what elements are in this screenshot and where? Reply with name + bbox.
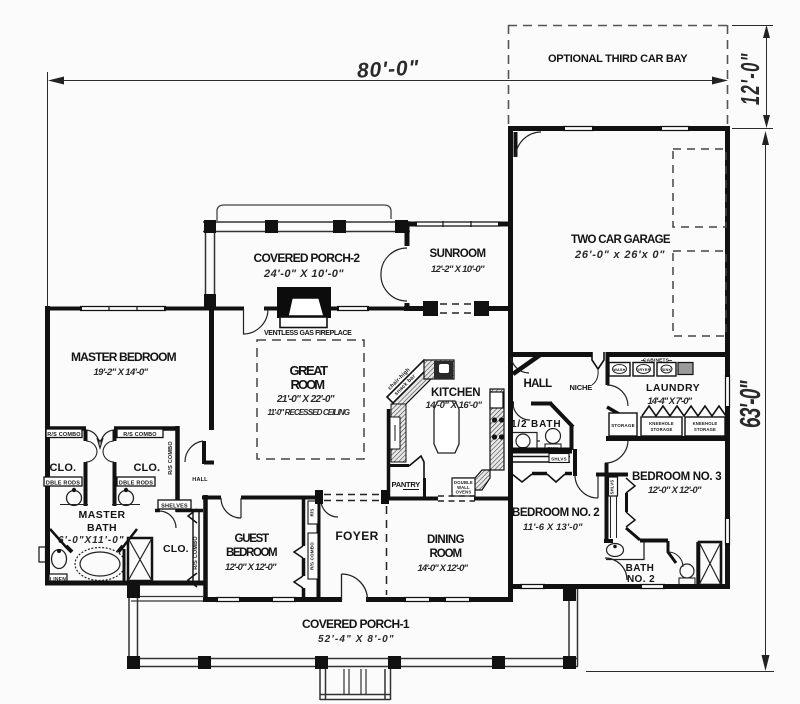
svg-text:CLO.: CLO.: [50, 462, 77, 474]
svg-text:SUNROOM: SUNROOM: [430, 248, 487, 260]
svg-text:KNEEHOLE: KNEEHOLE: [693, 421, 718, 426]
svg-text:19'-2" X 14'-0": 19'-2" X 14'-0": [94, 367, 149, 378]
svg-text:14'-4" X 7'-0": 14'-4" X 7'-0": [648, 396, 693, 407]
svg-text:STORAGE: STORAGE: [611, 423, 635, 428]
svg-text:11'-6 X 13'-0": 11'-6 X 13'-0": [523, 522, 583, 533]
svg-text:NICHE: NICHE: [570, 383, 593, 392]
svg-text:TWO CAR GARAGE: TWO CAR GARAGE: [571, 234, 671, 246]
svg-text:BEDROOM: BEDROOM: [226, 547, 278, 559]
svg-text:PANTRY: PANTRY: [392, 480, 421, 489]
svg-text:BATH: BATH: [626, 563, 655, 574]
svg-text:12'-0" X 12'-0": 12'-0" X 12'-0": [648, 485, 702, 496]
svg-text:LAUNDRY: LAUNDRY: [646, 382, 700, 394]
svg-text:KITCHEN: KITCHEN: [431, 387, 481, 399]
svg-text:24'-0" X 10'-0": 24'-0" X 10'-0": [263, 268, 344, 280]
svg-text:12'-0" X 12'-0": 12'-0" X 12'-0": [225, 562, 277, 573]
svg-text:21'-0" X 22'-0": 21'-0" X 22'-0": [276, 394, 335, 405]
svg-text:COVERED PORCH-1: COVERED PORCH-1: [302, 617, 410, 631]
svg-text:SHELVES: SHELVES: [161, 504, 188, 510]
svg-text:BATH: BATH: [87, 522, 117, 534]
svg-text:R/S COMBO: R/S COMBO: [123, 432, 157, 438]
svg-text:CLO.: CLO.: [134, 462, 161, 474]
svg-text:OPTIONAL THIRD CAR BAY: OPTIONAL THIRD CAR BAY: [548, 53, 688, 65]
svg-text:R/S COMBO: R/S COMBO: [168, 441, 174, 475]
svg-text:STORAGE: STORAGE: [694, 427, 716, 432]
svg-text:SHLVS: SHLVS: [551, 457, 567, 462]
svg-text:OVENS: OVENS: [456, 490, 472, 495]
svg-text:KNEEHOLE: KNEEHOLE: [649, 421, 674, 426]
svg-text:GUEST: GUEST: [235, 533, 270, 545]
svg-text:63'-0": 63'-0": [735, 380, 767, 428]
svg-text:26'-0" x 26'x 0": 26'-0" x 26'x 0": [574, 249, 665, 261]
svg-text:80'-0": 80'-0": [356, 56, 420, 82]
svg-text:BEDROOM NO. 2: BEDROOM NO. 2: [512, 507, 600, 519]
svg-text:MASTER: MASTER: [79, 509, 126, 521]
svg-text:14'-0" X 16'-0": 14'-0" X 16'-0": [426, 400, 483, 411]
svg-text:MASTER BEDROOM: MASTER BEDROOM: [71, 350, 177, 364]
svg-text:FOYER: FOYER: [335, 529, 378, 543]
svg-text:DBLE RODS: DBLE RODS: [119, 481, 153, 487]
svg-text:R/S COMBO: R/S COMBO: [193, 536, 199, 570]
svg-text:HALL: HALL: [192, 477, 208, 483]
svg-text:CLO.: CLO.: [163, 543, 189, 555]
svg-text:VENTLESS GAS FIREPLACE: VENTLESS GAS FIREPLACE: [264, 330, 352, 337]
svg-text:DRYER: DRYER: [636, 368, 650, 372]
svg-text:DBLE RODS: DBLE RODS: [46, 481, 80, 487]
svg-text:SINK: SINK: [662, 368, 672, 372]
svg-text:R/S COMBO: R/S COMBO: [47, 432, 81, 438]
svg-text:R/S: R/S: [310, 508, 315, 516]
svg-text:12'-2" X 10'-0": 12'-2" X 10'-0": [431, 264, 485, 275]
svg-text:R/S COMBO: R/S COMBO: [310, 542, 315, 570]
svg-text:12'-0": 12'-0": [736, 53, 765, 105]
svg-text:SHLVS: SHLVS: [610, 480, 615, 495]
svg-text:COVERED PORCH-2: COVERED PORCH-2: [254, 251, 361, 265]
svg-text:ROOM: ROOM: [291, 377, 326, 392]
svg-text:DINING: DINING: [427, 534, 465, 546]
svg-text:HALL: HALL: [524, 378, 553, 390]
svg-text:NO. 2: NO. 2: [627, 574, 655, 585]
svg-text:14'-0" X 12'-0": 14'-0" X 12'-0": [418, 563, 469, 574]
svg-text:ROOM: ROOM: [430, 548, 463, 560]
svg-text:GREAT: GREAT: [290, 363, 329, 378]
svg-text:STORAGE: STORAGE: [650, 427, 672, 432]
svg-text:6'-0"X11'-0": 6'-0"X11'-0": [58, 535, 124, 546]
svg-text:52'-4" X 8'-0": 52'-4" X 8'-0": [318, 634, 394, 645]
svg-text:WASH: WASH: [613, 368, 625, 372]
svg-text:BEDROOM NO. 3: BEDROOM NO. 3: [632, 471, 722, 483]
svg-text:11'-0" RECESSED CEILING: 11'-0" RECESSED CEILING: [268, 408, 351, 417]
